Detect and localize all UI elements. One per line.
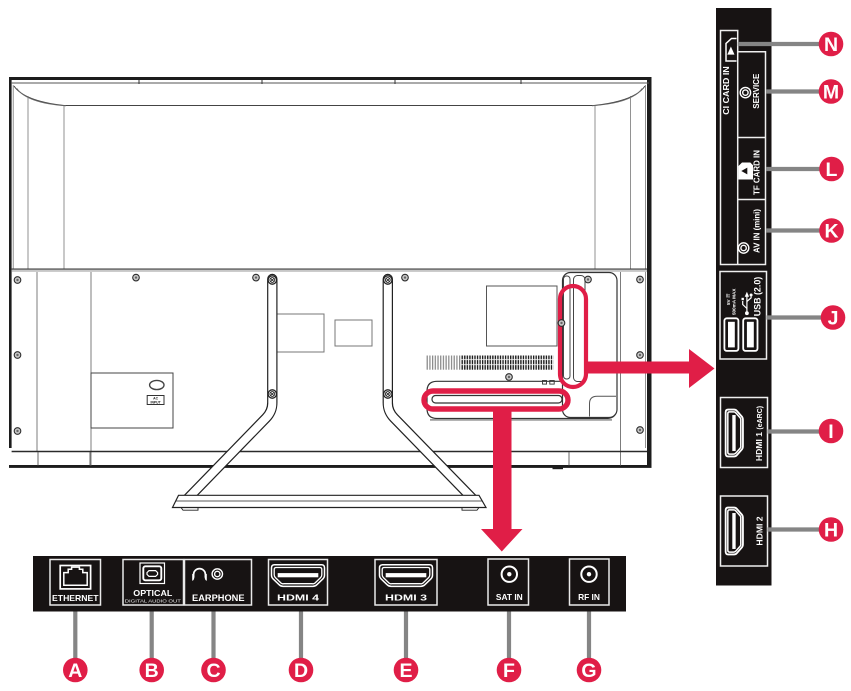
svg-text:5V: 5V: [726, 298, 731, 305]
svg-text:RF IN: RF IN: [578, 592, 600, 602]
svg-text:AV IN (mini): AV IN (mini): [753, 209, 762, 253]
svg-text:I: I: [828, 421, 833, 443]
svg-text:G: G: [581, 660, 596, 682]
svg-text:HDMI 3: HDMI 3: [385, 593, 427, 603]
svg-text:C: C: [206, 660, 220, 682]
svg-text:SERVICE: SERVICE: [751, 73, 761, 108]
svg-text:CI CARD IN: CI CARD IN: [721, 66, 731, 115]
svg-text:ETHERNET: ETHERNET: [52, 593, 99, 603]
svg-text:A: A: [68, 660, 82, 682]
svg-text:USB (2.0): USB (2.0): [753, 277, 763, 317]
svg-text:SAT IN: SAT IN: [496, 592, 523, 602]
svg-text:INPUT: INPUT: [151, 400, 162, 404]
svg-text:L: L: [826, 159, 838, 181]
svg-text:B: B: [145, 660, 159, 682]
svg-text:D: D: [294, 660, 308, 682]
svg-text:HDMI 4: HDMI 4: [277, 593, 319, 603]
svg-text:EARPHONE: EARPHONE: [192, 593, 245, 603]
svg-text:M: M: [823, 82, 839, 104]
svg-text:E: E: [399, 660, 412, 682]
svg-text:OPTICAL: OPTICAL: [133, 588, 172, 598]
svg-text:HDMI 2: HDMI 2: [755, 516, 765, 545]
svg-text:H: H: [824, 520, 838, 542]
svg-text:TF CARD IN: TF CARD IN: [752, 150, 762, 195]
svg-text:N: N: [824, 34, 838, 56]
svg-text:J: J: [828, 308, 839, 330]
svg-text:K: K: [824, 221, 838, 243]
svg-text:500mA MAX: 500mA MAX: [731, 288, 736, 315]
svg-text:F: F: [503, 660, 515, 682]
svg-text:DIGITAL AUDIO OUT: DIGITAL AUDIO OUT: [125, 599, 181, 604]
